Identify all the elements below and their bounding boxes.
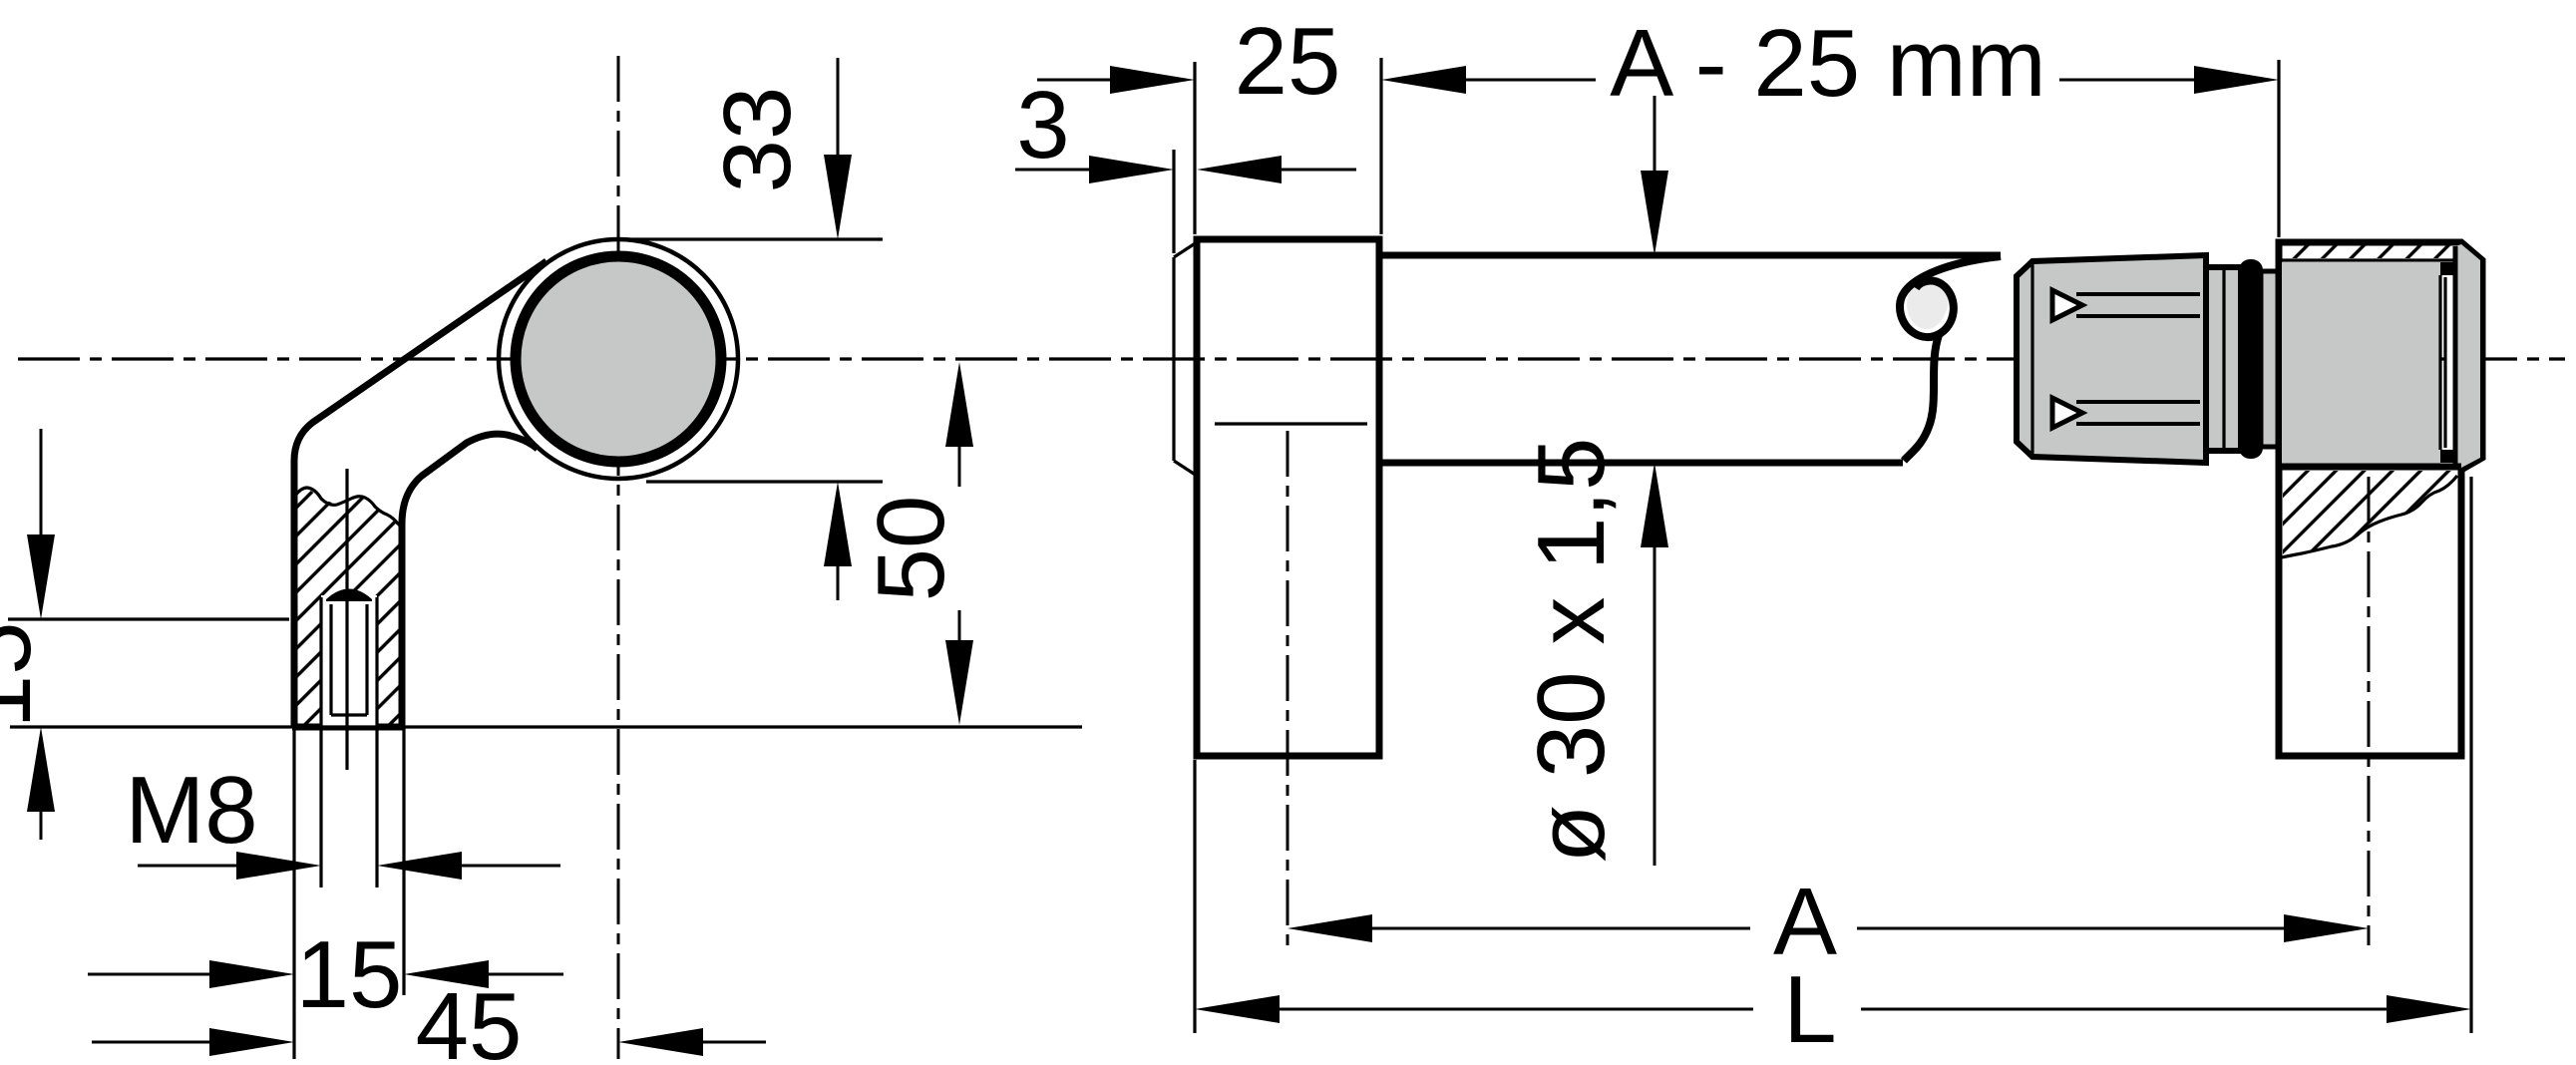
dim-33-label: 33	[704, 87, 811, 193]
arrowhead-up	[945, 362, 973, 447]
dim-tube-spec: ø 30 x 1,5	[1518, 96, 1668, 866]
left-shoe-block	[1174, 239, 1379, 945]
expander-plug	[2017, 255, 2279, 463]
arrowhead-right	[1089, 156, 1174, 183]
dim-50: 50	[858, 362, 973, 725]
arrowhead-right	[209, 1028, 294, 1056]
dim-25-label: 25	[1235, 8, 1341, 115]
dim-grip-length-label: A - 25 mm	[1610, 10, 2045, 117]
knob-body	[2017, 255, 2206, 463]
arrowhead-down	[27, 534, 55, 619]
mounting-foot-section	[295, 469, 402, 770]
right-boss-cap	[2455, 244, 2480, 468]
dim-m8-label: M8	[125, 757, 257, 864]
dim-45-label: 45	[416, 973, 523, 1065]
arrowhead-right	[2194, 66, 2279, 94]
dim-15-left-label: 15	[0, 622, 51, 729]
front-view: 25 A - 25 mm 3 ø 30 x 1,5	[1015, 8, 2482, 1063]
arrowhead-right	[2284, 914, 2369, 942]
dim-m8: M8	[125, 757, 560, 880]
tube-break-tail	[1904, 335, 1939, 461]
arm-inner-edge	[402, 434, 538, 727]
o-ring	[2239, 259, 2263, 459]
arrowhead-up	[824, 482, 852, 566]
dim-l: L	[1195, 956, 2471, 1063]
dim-45: 45	[92, 973, 766, 1065]
arrowhead-right	[1110, 66, 1195, 94]
arrowhead-left	[618, 1028, 703, 1056]
arrowhead-down	[945, 640, 973, 725]
side-view: 33 50 15 M8	[0, 58, 1082, 1065]
arrowhead-right	[236, 852, 321, 880]
technical-drawing-page: 33 50 15 M8	[0, 0, 2576, 1065]
arrowhead-left	[1288, 914, 1372, 942]
dim-tube-spec-label: ø 30 x 1,5	[1518, 438, 1625, 864]
arrowhead-right	[2387, 995, 2471, 1023]
arrowhead-left	[377, 852, 462, 880]
insert-section	[2282, 262, 2440, 464]
arrowhead-down	[1641, 171, 1668, 255]
arrowhead-right	[209, 960, 294, 988]
arrowhead-down	[824, 155, 852, 239]
arrowhead-left	[1197, 156, 1282, 183]
dim-15-width-label: 15	[296, 921, 403, 1028]
right-shoe-block	[2279, 242, 2482, 945]
arrowhead-left	[1381, 66, 1466, 94]
dim-3-label: 3	[1016, 72, 1069, 178]
dim-l-label: L	[1783, 956, 1836, 1063]
arrowhead-up	[27, 727, 55, 812]
arrowhead-up	[1641, 463, 1668, 547]
dim-50-label: 50	[858, 496, 964, 602]
ring-wall-hatch	[2283, 245, 2457, 258]
arrowhead-left	[1195, 995, 1280, 1023]
